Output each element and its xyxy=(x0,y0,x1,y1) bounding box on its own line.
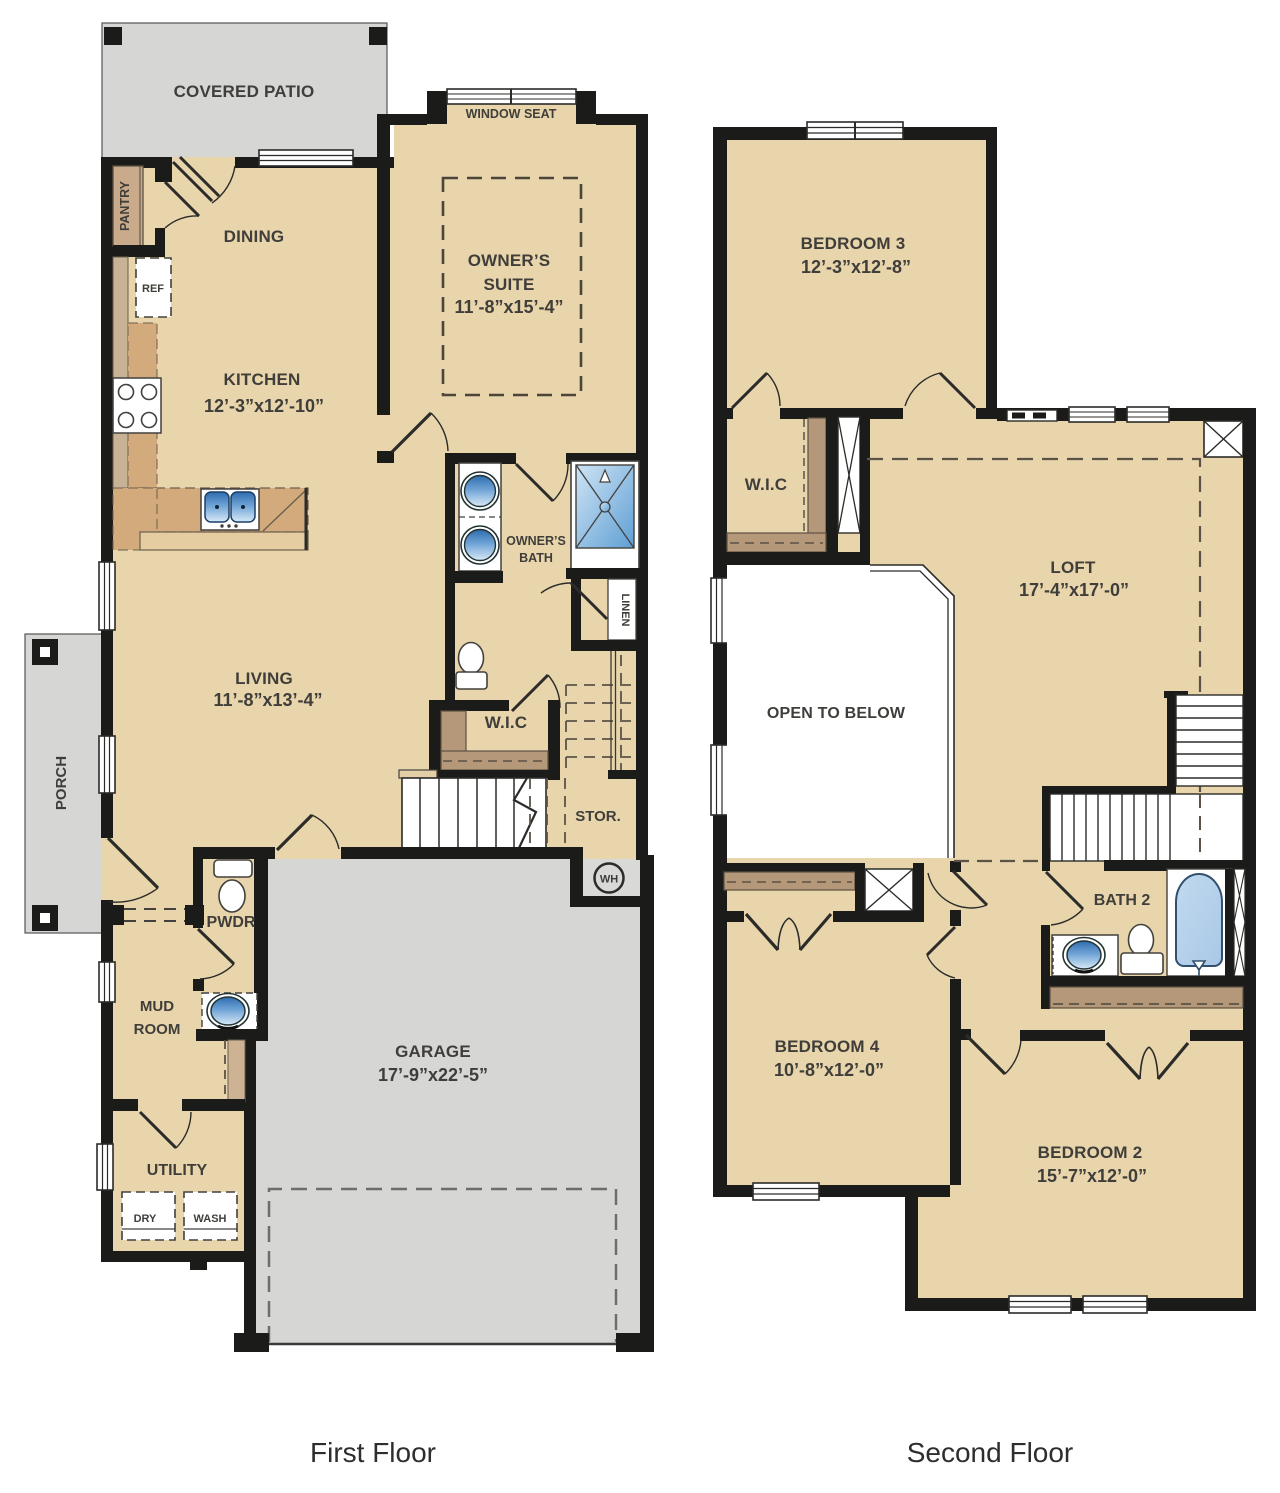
svg-text:UTILITY: UTILITY xyxy=(147,1162,208,1179)
svg-text:SUITE: SUITE xyxy=(483,275,534,294)
svg-text:Second Floor: Second Floor xyxy=(907,1437,1074,1468)
svg-text:17’-4”x17’-0”: 17’-4”x17’-0” xyxy=(1019,580,1129,600)
svg-text:GARAGE: GARAGE xyxy=(395,1042,471,1061)
svg-text:BATH: BATH xyxy=(519,551,553,565)
svg-text:OPEN TO BELOW: OPEN TO BELOW xyxy=(767,705,906,722)
svg-text:PORCH: PORCH xyxy=(53,756,70,810)
svg-text:W.I.C: W.I.C xyxy=(485,713,528,732)
svg-text:BATH 2: BATH 2 xyxy=(1094,892,1151,909)
svg-text:12’-3”x12’-10”: 12’-3”x12’-10” xyxy=(204,396,324,416)
svg-text:First Floor: First Floor xyxy=(310,1437,436,1468)
svg-text:11’-8”x13’-4”: 11’-8”x13’-4” xyxy=(213,690,322,710)
svg-text:BEDROOM 4: BEDROOM 4 xyxy=(775,1037,880,1056)
svg-text:STOR.: STOR. xyxy=(575,808,621,825)
svg-text:W.I.C: W.I.C xyxy=(745,475,788,494)
svg-text:OWNER’S: OWNER’S xyxy=(468,251,551,270)
svg-text:12’-3”x12’-8”: 12’-3”x12’-8” xyxy=(801,257,911,277)
svg-text:LIVING: LIVING xyxy=(235,669,293,688)
svg-text:ROOM: ROOM xyxy=(134,1021,181,1038)
svg-text:LOFT: LOFT xyxy=(1050,558,1096,577)
svg-text:WH: WH xyxy=(600,874,618,886)
svg-text:17’-9”x22’-5”: 17’-9”x22’-5” xyxy=(378,1065,488,1085)
svg-text:BEDROOM 3: BEDROOM 3 xyxy=(801,234,906,253)
svg-text:MUD: MUD xyxy=(140,998,174,1015)
svg-text:COVERED PATIO: COVERED PATIO xyxy=(174,82,315,101)
svg-text:WINDOW SEAT: WINDOW SEAT xyxy=(466,107,557,121)
svg-text:REF: REF xyxy=(142,283,164,295)
svg-text:PANTRY: PANTRY xyxy=(118,180,132,231)
svg-text:11’-8”x15’-4”: 11’-8”x15’-4” xyxy=(454,297,563,317)
svg-text:WASH: WASH xyxy=(194,1213,227,1225)
svg-text:LINEN: LINEN xyxy=(619,594,631,627)
svg-text:DRY: DRY xyxy=(134,1213,157,1225)
svg-text:DINING: DINING xyxy=(224,227,285,246)
svg-text:KITCHEN: KITCHEN xyxy=(224,370,301,389)
svg-text:15’-7”x12’-0”: 15’-7”x12’-0” xyxy=(1037,1166,1147,1186)
svg-text:10’-8”x12’-0”: 10’-8”x12’-0” xyxy=(774,1060,884,1080)
svg-text:BEDROOM 2: BEDROOM 2 xyxy=(1038,1143,1143,1162)
svg-text:OWNER’S: OWNER’S xyxy=(506,534,566,548)
svg-text:PWDR: PWDR xyxy=(207,914,256,931)
